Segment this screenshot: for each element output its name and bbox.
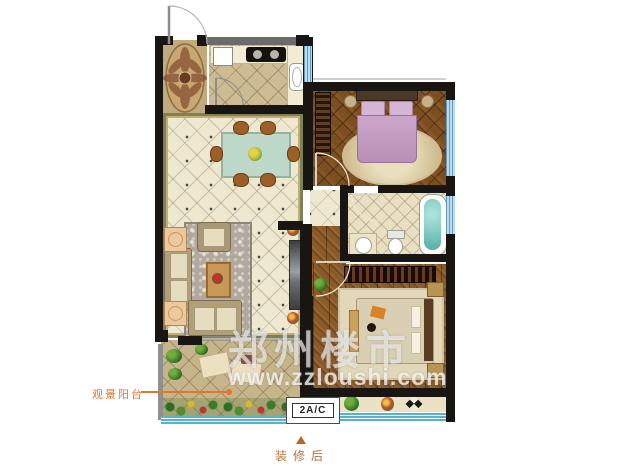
wall-bathroom-top-right (378, 185, 446, 193)
wardrobe-icon (344, 266, 436, 283)
side-table-icon (164, 301, 187, 326)
dining-table-icon (221, 132, 291, 178)
dining-chair-icon (260, 121, 276, 135)
balcony-pointer-dot (226, 389, 232, 395)
nightstand-icon (421, 95, 434, 108)
wall-left (155, 36, 163, 338)
armchair-cushion (203, 228, 225, 247)
dining-chair-icon (233, 173, 249, 187)
caption-triangle-icon (296, 436, 306, 444)
bathtub-icon (419, 194, 447, 256)
pillow-icon (361, 101, 385, 116)
washbasin-icon (355, 237, 372, 254)
dining-chair-icon (210, 146, 223, 162)
caption-text: 装修后 (275, 447, 329, 464)
wall-entry-stub (155, 36, 173, 45)
sofa-cushion (170, 253, 188, 279)
balcony-label: 观景阳台 (92, 386, 144, 402)
bay-flower-icon (381, 397, 394, 411)
burner-icon (270, 50, 279, 59)
balcony-railing-window (161, 416, 302, 425)
wall-kitchen-top (205, 37, 305, 45)
coffee-table-icon (206, 262, 231, 298)
wall-bathroom-bottom (340, 254, 446, 262)
balcony-plant-icon (195, 344, 208, 355)
bay-plant-icon (344, 396, 359, 411)
wall-kitchen-bottom (205, 105, 312, 114)
wall-hall-stub (278, 221, 303, 230)
stove-icon (246, 47, 286, 62)
balcony-plant-icon (168, 368, 182, 380)
bedroom2-window (446, 100, 455, 176)
bathtub-water-icon (424, 199, 441, 250)
pillow-icon (389, 101, 413, 116)
wall-kitchen-top-end-left (197, 35, 207, 46)
unit-label: 2A/C (292, 403, 335, 418)
wall-balcony-stub (178, 336, 202, 345)
bed2-headboard (356, 90, 418, 101)
wall-balcony-left-thin (158, 344, 163, 420)
bathroom-window (446, 196, 455, 234)
side-table-top-icon (168, 306, 183, 321)
wall-living-bottom-left (155, 330, 168, 342)
wall-bedroom2-top (303, 82, 455, 91)
kitchen-window (304, 46, 312, 82)
dining-chair-icon (260, 173, 276, 187)
armchair-icon (197, 222, 231, 252)
sofa-cushion (194, 307, 215, 331)
pillow-icon (411, 306, 421, 328)
double-bed-icon (357, 115, 417, 163)
wall-bathroom-left (340, 185, 348, 262)
table-centerpiece-icon (248, 147, 262, 161)
balcony-plant-icon (166, 349, 182, 363)
toilet-bowl (388, 238, 403, 255)
flower-bed (163, 398, 302, 417)
dining-chair-icon (233, 121, 249, 135)
bay-window (338, 412, 446, 422)
kitchen-cabinet (213, 47, 233, 66)
floorplan-page: 郑州楼市 www.zzloushi.com 观景阳台 2A/C 装修后 (0, 0, 620, 470)
sink-basin-icon (292, 67, 302, 87)
burner-icon (253, 50, 262, 59)
hallway-plant-icon (314, 278, 327, 291)
foyer-floor (163, 40, 207, 116)
unit-label-box: 2A/C (286, 397, 340, 424)
bed-headboard (424, 299, 433, 361)
flower-centerpiece-icon (212, 273, 223, 284)
side-table-icon (164, 227, 187, 252)
nightstand-icon (427, 282, 444, 297)
pillow-icon (411, 332, 421, 354)
watermark-url: www.zzloushi.com (228, 364, 448, 391)
toilet-icon (387, 230, 403, 254)
floor-medallion-icon (163, 40, 207, 116)
dining-chair-icon (287, 146, 300, 162)
bedroom2-ledge-line (313, 78, 446, 80)
balcony-pointer-line (141, 391, 227, 393)
wardrobe-icon (315, 92, 331, 156)
side-table-top-icon (168, 232, 183, 247)
